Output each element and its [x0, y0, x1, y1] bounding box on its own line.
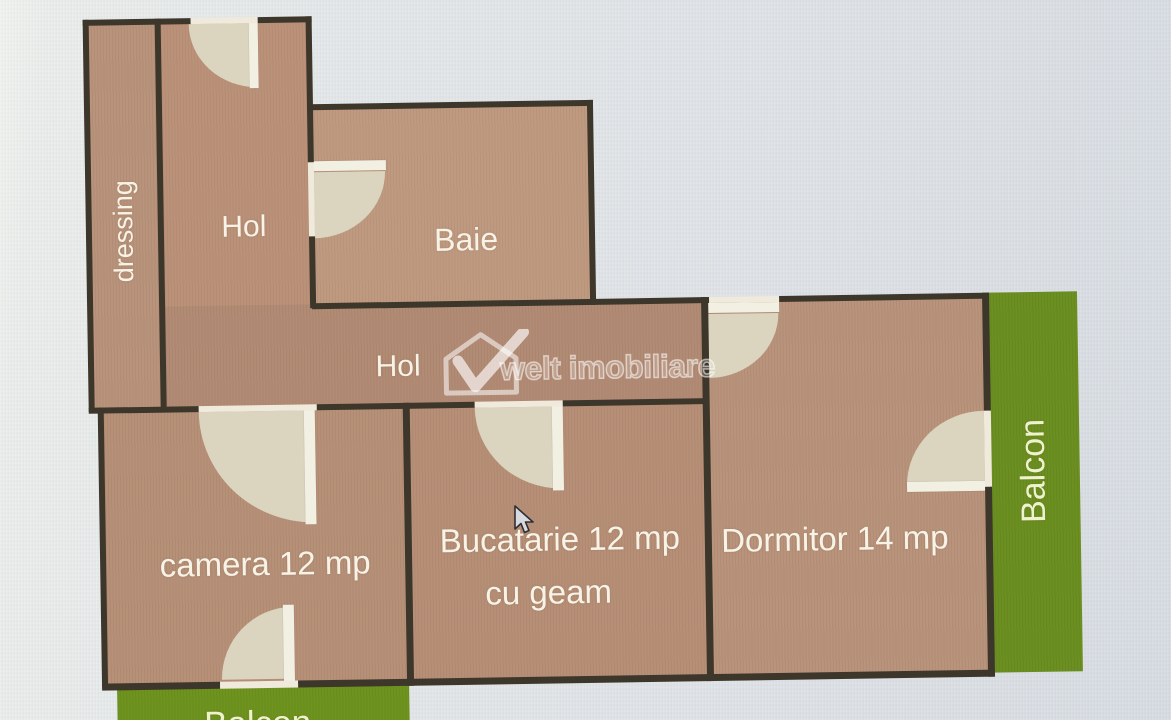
wall [306, 16, 314, 162]
mouse-cursor-icon [513, 505, 537, 537]
room-label-baie: Baie [434, 221, 499, 259]
door-opening-entrance [191, 17, 258, 24]
door-opening-dormitor [709, 296, 779, 303]
room-label-dormitor: Dormitor 14 mp [721, 518, 949, 560]
room-label-camera: camera 12 mp [159, 543, 371, 584]
room-label-balcon-bottom: Balcon [204, 703, 312, 720]
wall [258, 16, 312, 23]
door-leaf-dormitor [708, 302, 779, 313]
room-label-bucatarie: Bucatarie 12 mp [439, 519, 680, 561]
door-opening-baie [308, 162, 315, 236]
door-leaf-baie [313, 160, 386, 171]
room-label-dressing: dressing [108, 180, 141, 283]
door-leaf-entrance [249, 21, 259, 88]
door-leaf-camera [304, 408, 317, 524]
door-leaf-camera-balcony [283, 605, 295, 683]
door-opening-dormitor-balcony [984, 411, 992, 487]
photographed-screen-background: dressing Hol Baie Hol camera 12 mp Bucat… [0, 0, 1171, 720]
wall [309, 236, 316, 308]
watermark-brand-text: welt imobiliare [500, 347, 715, 387]
room-label-hol-top: Hol [221, 210, 267, 245]
room-label-hol-corridor: Hol [375, 350, 421, 385]
room-label-balcon-right: Balcon [1013, 419, 1054, 524]
floor-plan: dressing Hol Baie Hol camera 12 mp Bucat… [0, 0, 1171, 720]
door-opening-camera-balcony [220, 681, 298, 689]
door-leaf-bucatarie [552, 404, 564, 490]
door-leaf-dormitor-balcony [907, 481, 986, 492]
room-label-bucatarie-sub: cu geam [485, 573, 612, 613]
